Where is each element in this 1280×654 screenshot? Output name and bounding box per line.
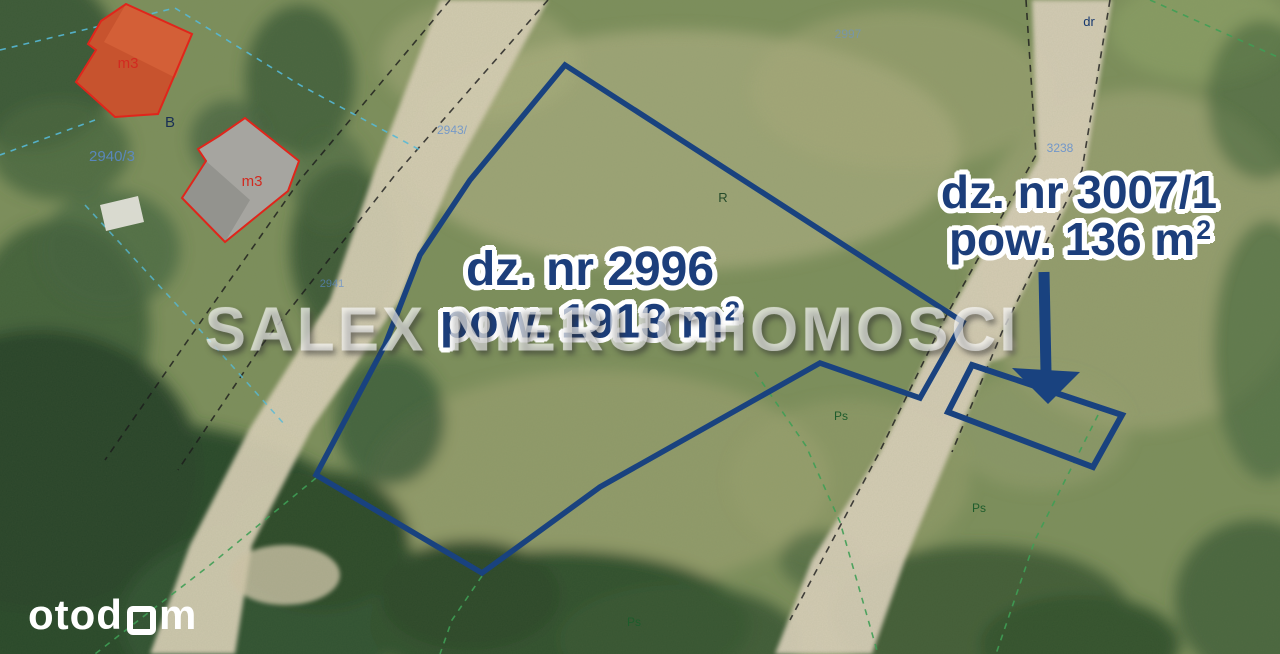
label-landuse-r: R xyxy=(718,190,727,205)
label-road-dr: dr xyxy=(1083,14,1095,29)
label-parcel-2943: 2943/ xyxy=(437,123,468,137)
parcel-3007-1-id-text: dz. nr 3007/1 xyxy=(941,166,1217,218)
parcel-2996-id-label: dz. nr 2996 xyxy=(466,246,714,294)
parcel-3007-1-id-label: dz. nr 3007/1 xyxy=(941,169,1217,215)
parcel-3007-1-area-text: pow. 136 m xyxy=(949,213,1195,265)
parcel-2996-id-text: dz. nr 2996 xyxy=(466,243,714,296)
otodom-logo-prefix: otod xyxy=(28,594,123,636)
label-parcel-3238: 3238 xyxy=(1047,141,1074,155)
label-house2-m3: m3 xyxy=(242,173,263,190)
label-landuse-ps-3: Ps xyxy=(627,615,641,629)
label-point-b: B xyxy=(165,114,175,131)
label-landuse-ps-2: Ps xyxy=(972,501,986,515)
label-parcel-2940-3: 2940/3 xyxy=(89,148,135,165)
label-house1-m3: m3 xyxy=(118,55,139,72)
otodom-logo-square-icon xyxy=(127,606,156,635)
otodom-logo-suffix: m xyxy=(159,594,197,636)
label-landuse-ps-1: Ps xyxy=(834,409,848,423)
parcel-3007-1-area-label: pow. 136 m2 xyxy=(949,216,1211,262)
label-parcel-2941: 2941 xyxy=(320,278,344,290)
otodom-logo: otod m xyxy=(28,594,197,636)
parcel-3007-1-area-sup: 2 xyxy=(1196,215,1211,245)
aerial-parcel-photo: m3 m3 B 2940/3 2943/ 2941 2997 dr 3238 R… xyxy=(0,0,1280,654)
label-parcel-2997: 2997 xyxy=(835,27,862,41)
agency-watermark: SALEX NIERUCHOMOSCI xyxy=(205,295,1020,366)
arrow-shaft xyxy=(1044,272,1046,372)
